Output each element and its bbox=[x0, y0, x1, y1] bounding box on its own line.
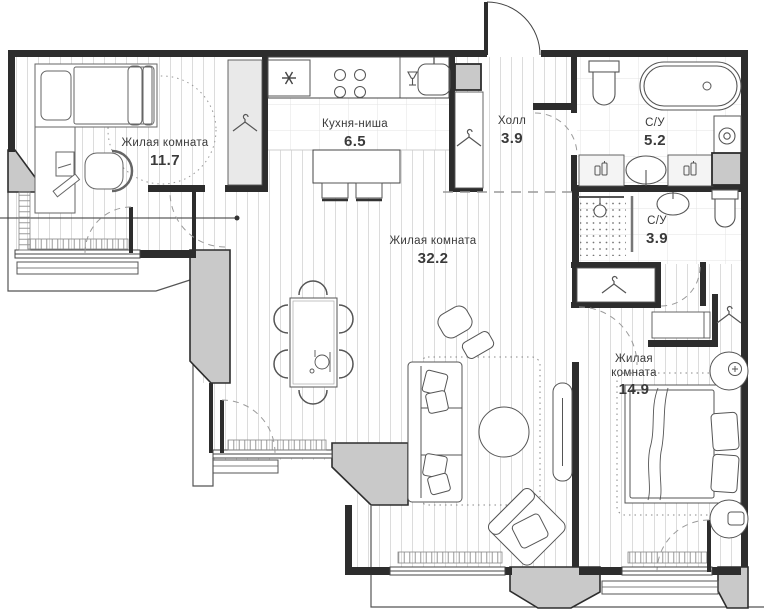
balcony-rail-bedroom2 bbox=[602, 581, 718, 594]
svg-text:3.9: 3.9 bbox=[646, 230, 668, 247]
nightstand-top-icon bbox=[710, 352, 748, 390]
svg-text:С/У: С/У bbox=[647, 215, 667, 227]
label-bath-large: С/У 5.2 bbox=[644, 117, 666, 149]
tv-console-icon bbox=[553, 383, 572, 481]
svg-text:5.2: 5.2 bbox=[644, 132, 666, 149]
vanity-cabinet-left bbox=[579, 155, 624, 186]
toilet2-icon bbox=[712, 190, 738, 227]
svg-text:С/У: С/У bbox=[645, 117, 665, 129]
bed-double-icon bbox=[625, 385, 741, 503]
desk-icon bbox=[35, 127, 75, 213]
svg-text:Кухня-ниша: Кухня-ниша bbox=[322, 118, 388, 130]
radiator-bedroom1 bbox=[28, 239, 128, 249]
label-bath-small: С/У 3.9 bbox=[646, 215, 668, 247]
wardrobe-hall bbox=[455, 92, 483, 188]
room-hall bbox=[455, 64, 483, 188]
wardrobe-bedroom2 bbox=[652, 312, 710, 338]
vent-shaft-hall bbox=[455, 64, 481, 90]
vanity-cabinet-right bbox=[668, 155, 713, 186]
svg-text:Жилая: Жилая bbox=[615, 353, 653, 365]
coffee-table-icon bbox=[479, 407, 529, 457]
window-living-left bbox=[213, 450, 332, 458]
label-hall: Холл 3.9 bbox=[498, 115, 526, 147]
floor-plan: Жилая комната 11.7 Кухня-ниша 6.5 Холл 3… bbox=[0, 0, 764, 611]
shower-icon bbox=[578, 197, 626, 256]
nightstand-bottom-icon bbox=[710, 500, 748, 538]
sofa-icon bbox=[408, 362, 462, 502]
toilet-icon bbox=[589, 61, 619, 105]
svg-text:6.5: 6.5 bbox=[344, 133, 366, 150]
balcony-rail-bedroom1 bbox=[17, 262, 138, 274]
window-bedroom1 bbox=[15, 250, 140, 258]
svg-text:32.2: 32.2 bbox=[418, 250, 449, 267]
svg-text:Жилая комната: Жилая комната bbox=[122, 137, 209, 149]
bathtub-icon bbox=[640, 62, 741, 110]
pier-left bbox=[190, 250, 230, 383]
svg-text:комната: комната bbox=[611, 367, 657, 379]
svg-text:11.7: 11.7 bbox=[150, 152, 180, 169]
radiator-living-left bbox=[228, 440, 326, 450]
floor-plan-canvas: Жилая комната 11.7 Кухня-ниша 6.5 Холл 3… bbox=[0, 0, 764, 611]
svg-text:Холл: Холл bbox=[498, 115, 526, 127]
entrance-door bbox=[484, 2, 540, 55]
svg-text:3.9: 3.9 bbox=[501, 130, 523, 147]
svg-text:Жилая комната: Жилая комната bbox=[390, 235, 477, 247]
washing-machine-icon bbox=[714, 116, 741, 154]
svg-text:14.9: 14.9 bbox=[619, 381, 650, 398]
window-living-bottom bbox=[390, 567, 505, 575]
bed-single-icon bbox=[35, 64, 157, 127]
radiator-living-bottom bbox=[398, 552, 502, 563]
vent-shaft-bath bbox=[712, 153, 741, 185]
window-bedroom2 bbox=[622, 567, 712, 575]
radiator-bedroom1-left bbox=[19, 192, 30, 250]
radiator-bedroom2 bbox=[628, 552, 710, 563]
